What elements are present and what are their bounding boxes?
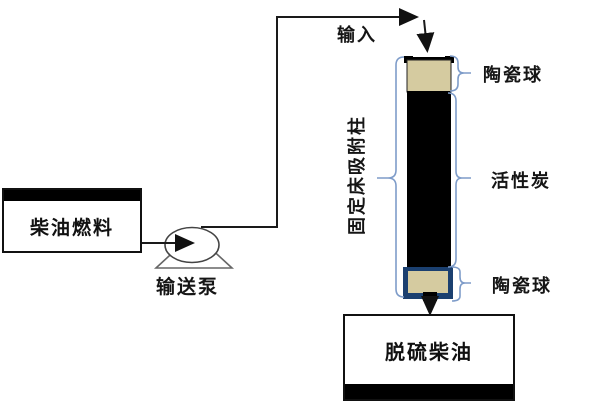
column-ceramic-top: [407, 60, 451, 92]
desulfurized-diesel-tank: 脱硫柴油: [343, 314, 515, 401]
desulfurized-diesel-label: 脱硫柴油: [345, 316, 513, 384]
fixed-bed-column-label: 固定床吸附柱: [343, 115, 369, 235]
column-outlet-tab: [423, 292, 437, 301]
pump-label: 输送泵: [156, 272, 219, 299]
inlet-arrow: [424, 20, 427, 48]
pump-circle: [165, 228, 219, 263]
column-ceramic-bottom: [408, 271, 448, 293]
column-carbon-bed: [407, 91, 451, 272]
bracket-ceramic-bottom: [452, 267, 471, 301]
ceramic-balls-top-label: 陶瓷球: [483, 61, 543, 87]
activated-carbon-label: 活性炭: [491, 167, 551, 193]
ceramic-balls-bottom-label: 陶瓷球: [492, 272, 552, 298]
feed-pipe: [201, 17, 414, 227]
diesel-tank-cap: [4, 190, 140, 201]
bracket-carbon: [448, 93, 471, 267]
input-label: 输入: [337, 21, 377, 47]
diesel-fuel-tank: 柴油燃料: [2, 188, 142, 253]
bracket-column-left: [377, 57, 404, 297]
diesel-fuel-label: 柴油燃料: [4, 201, 140, 251]
process-diagram: 柴油燃料 脱硫柴油 输入 陶瓷球 活性炭 陶瓷球 输送泵 固定床吸附柱: [0, 0, 600, 405]
desulfurized-diesel-liquid: [345, 384, 513, 399]
